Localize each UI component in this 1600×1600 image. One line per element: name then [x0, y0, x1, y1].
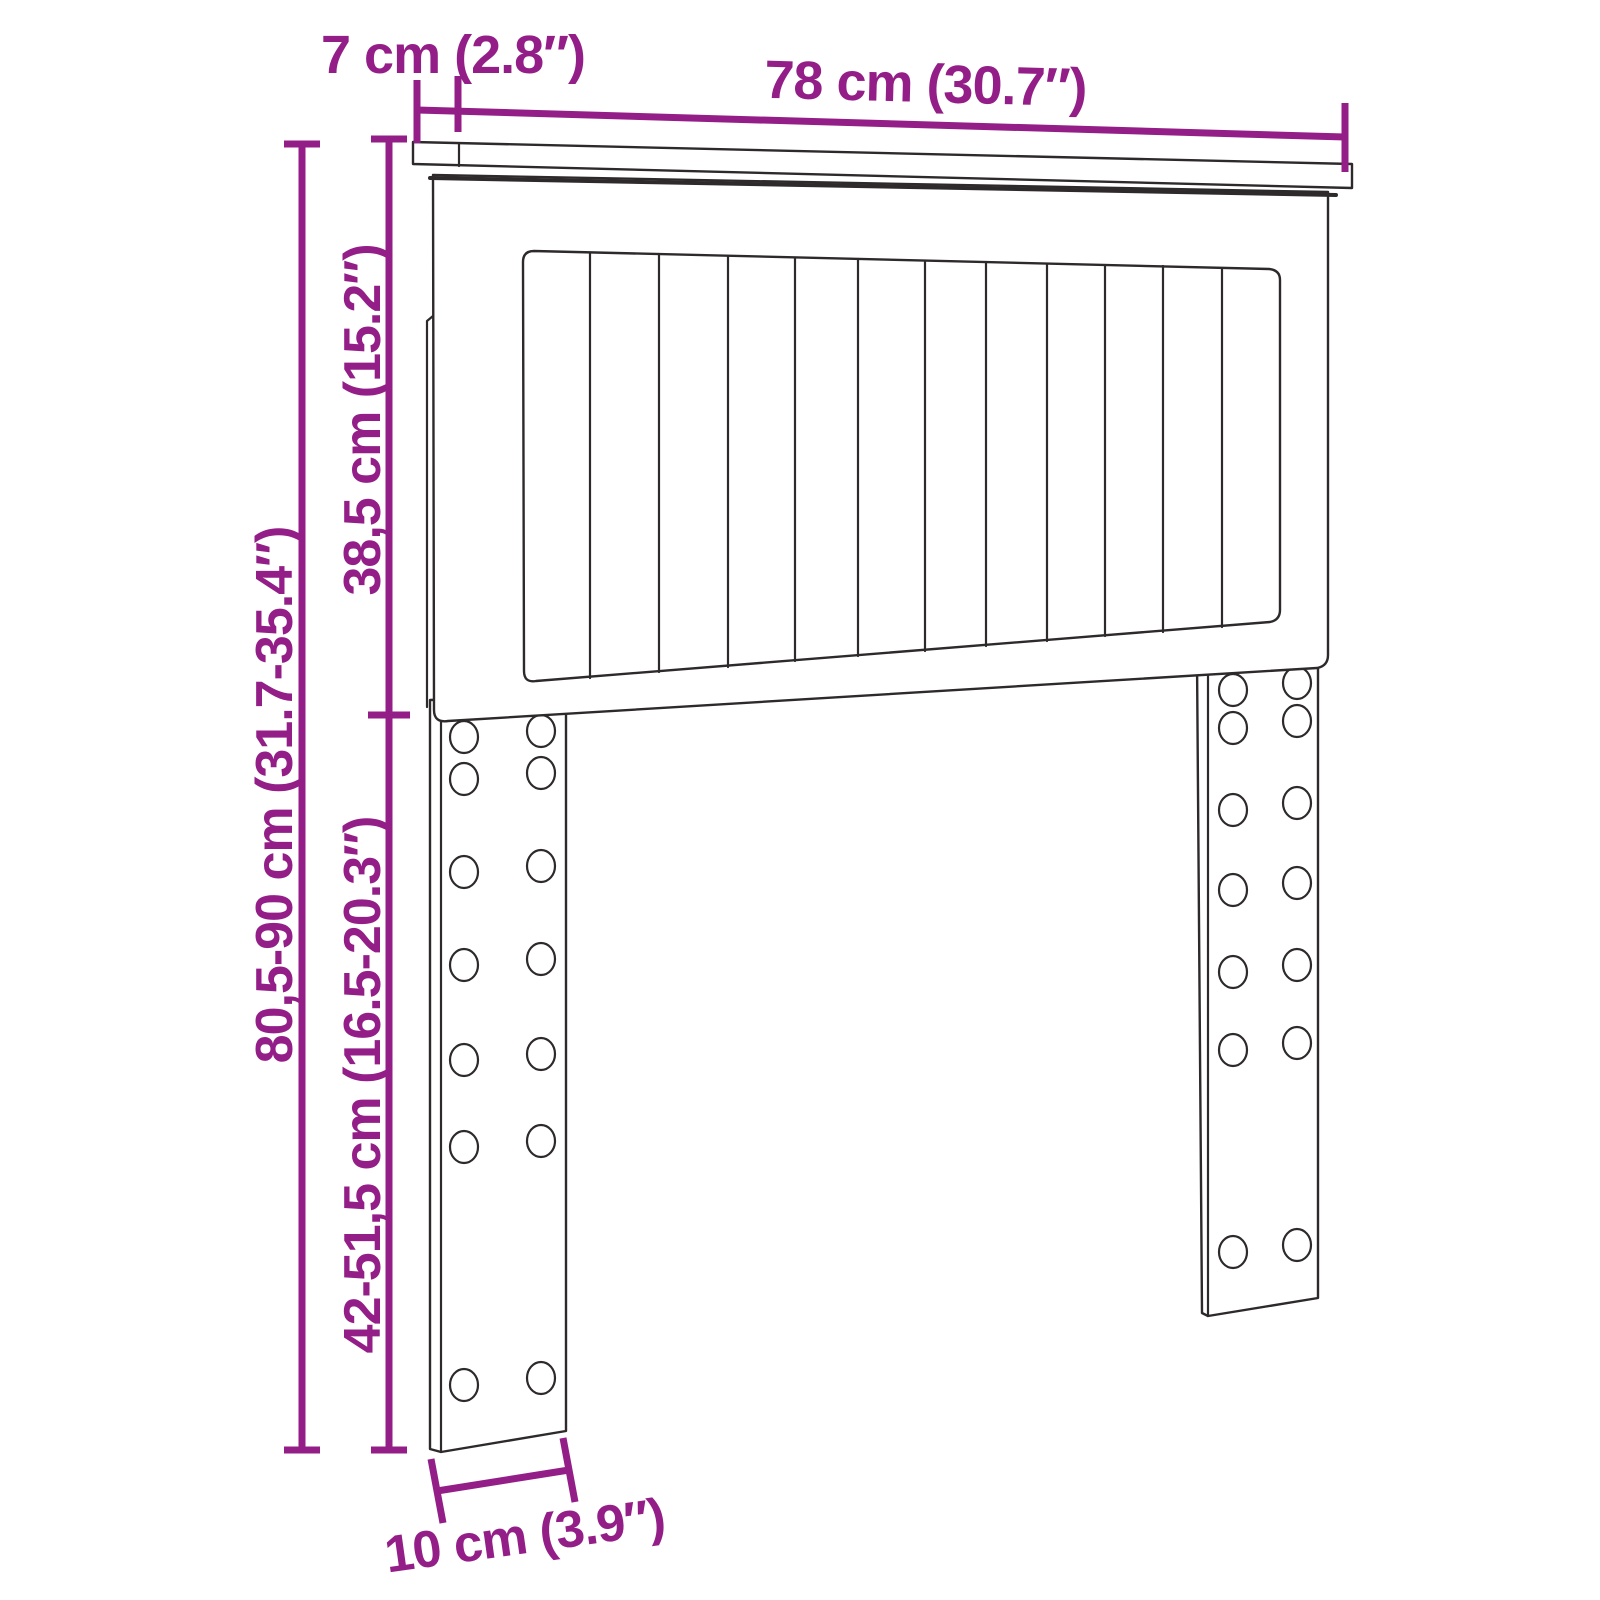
right-leg-body — [1197, 655, 1318, 1316]
bolt-hole — [450, 763, 478, 795]
bolt-hole — [1219, 874, 1247, 906]
slat-panel — [523, 251, 1280, 681]
headboard-dimension-diagram: 7 cm (2.8″) 78 cm (30.7″) 80,5-90 cm (31… — [0, 0, 1600, 1600]
left-leg — [430, 696, 566, 1452]
bolt-hole — [527, 1125, 555, 1157]
dimension-leg-width: 10 cm (3.9″) — [381, 1438, 668, 1584]
bolt-hole — [1283, 787, 1311, 819]
bolt-hole — [1219, 1034, 1247, 1066]
right-leg — [1197, 655, 1318, 1316]
width-label: 78 cm (30.7″) — [764, 50, 1088, 118]
bolt-hole — [527, 1362, 555, 1394]
upper-height-label: 38,5 cm (15.2″) — [334, 244, 392, 595]
bolt-hole — [1283, 949, 1311, 981]
bolt-hole — [450, 721, 478, 753]
bolt-hole — [1219, 674, 1247, 706]
leg-height-label: 42-51,5 cm (16.5-20.3″) — [334, 817, 392, 1354]
bolt-hole — [1219, 794, 1247, 826]
bolt-hole — [1283, 1229, 1311, 1261]
dimension-split-height: 38,5 cm (15.2″) 42-51,5 cm (16.5-20.3″) — [334, 139, 410, 1450]
leg-width-line — [437, 1470, 569, 1491]
bolt-hole — [527, 715, 555, 747]
bolt-hole — [1283, 1027, 1311, 1059]
total-height-label: 80,5-90 cm (31.7-35.4″) — [246, 527, 304, 1064]
bolt-hole — [450, 1131, 478, 1163]
shelf-depth-label: 7 cm (2.8″) — [321, 25, 585, 85]
bolt-hole — [1219, 712, 1247, 744]
bolt-hole — [1283, 705, 1311, 737]
bolt-hole — [450, 856, 478, 888]
bolt-hole — [450, 949, 478, 981]
bolt-hole — [527, 943, 555, 975]
bolt-hole — [450, 1369, 478, 1401]
bolt-hole — [527, 1038, 555, 1070]
dimension-shelf-depth: 7 cm (2.8″) — [321, 25, 585, 143]
panel-left-side-face — [427, 316, 433, 707]
slat-panel-frame — [523, 251, 1280, 681]
leg-width-label: 10 cm (3.9″) — [381, 1488, 668, 1585]
bolt-hole — [527, 757, 555, 789]
left-leg-body — [430, 696, 566, 1452]
width-line — [417, 110, 1345, 137]
bolt-hole — [450, 1044, 478, 1076]
bolt-hole — [527, 850, 555, 882]
bolt-hole — [1219, 1236, 1247, 1268]
dimension-total-height: 80,5-90 cm (31.7-35.4″) — [246, 144, 320, 1450]
bolt-hole — [1283, 667, 1311, 699]
bolt-hole — [1283, 867, 1311, 899]
diagram-canvas: 7 cm (2.8″) 78 cm (30.7″) 80,5-90 cm (31… — [0, 0, 1600, 1600]
bolt-hole — [1219, 956, 1247, 988]
